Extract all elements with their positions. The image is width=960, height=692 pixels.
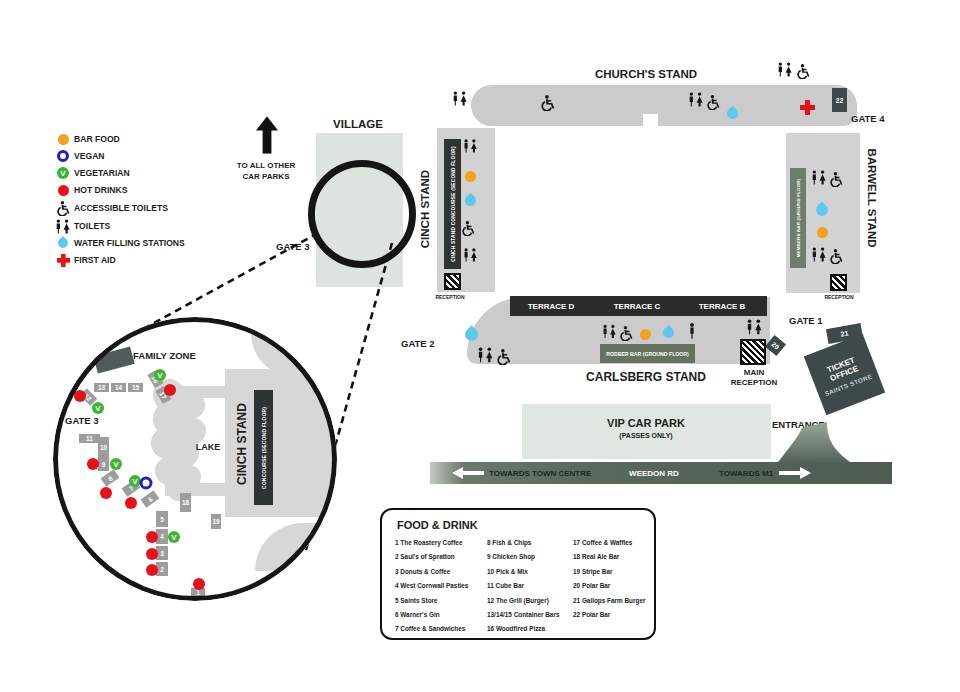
vip-label-line1: VIP CAR PARK bbox=[607, 417, 685, 429]
food-item: 17 Coffee & Waffles bbox=[573, 536, 645, 550]
first-aid-icon bbox=[800, 100, 815, 115]
toilets-icon bbox=[52, 217, 74, 235]
legend-item-bar-food: BAR FOOD bbox=[52, 131, 120, 147]
map-marker bbox=[146, 564, 158, 576]
terrace-b-label: TERRACE B bbox=[699, 302, 746, 311]
car-parks-note-line2: CAR PARKS bbox=[243, 172, 290, 181]
toilets-icon bbox=[451, 91, 469, 106]
accessible-toilets-icon bbox=[796, 64, 811, 79]
vip-label-line2: (PASSES ONLY) bbox=[619, 432, 672, 439]
food-column-3: 17 Coffee & Waffles18 Real Ale Bar19 Str… bbox=[573, 536, 645, 622]
toilets-icon bbox=[601, 324, 618, 339]
reception-label: RECEPTION bbox=[824, 294, 853, 300]
food-stall-box: 8 bbox=[101, 469, 120, 486]
legend-item-accessible-toilets: ACCESSIBLE TOILETS bbox=[52, 200, 168, 216]
legend-item-water: WATER FILLING STATIONS bbox=[52, 235, 185, 251]
gate4-badge: 22 bbox=[832, 88, 847, 112]
barwell-stand-title: BARWELL STAND bbox=[866, 148, 878, 247]
food-stall-box: 15 bbox=[128, 383, 143, 392]
rodber-bar-label: RODBER BAR (GROUND FLOOR) bbox=[606, 351, 689, 357]
village-title: VILLAGE bbox=[333, 118, 383, 130]
reception-icon bbox=[444, 273, 461, 290]
legend-label: ACCESSIBLE TOILETS bbox=[74, 203, 168, 213]
food-item: 4 West Cornwall Pasties bbox=[395, 579, 468, 593]
food-stall-box: 14 bbox=[111, 383, 126, 392]
village-circle-outline bbox=[308, 160, 416, 268]
legend-item-first-aid: FIRST AID bbox=[52, 252, 116, 268]
legend-label: FIRST AID bbox=[74, 255, 116, 265]
entrance-label: ENTRANCE bbox=[772, 419, 825, 430]
map-marker bbox=[193, 578, 205, 590]
accessible-toilets-icon bbox=[496, 349, 512, 365]
bar-food-marker bbox=[817, 227, 828, 238]
toilets-icon bbox=[462, 248, 479, 262]
accessible-toilets-icon bbox=[461, 221, 476, 236]
toilets-icon bbox=[745, 319, 764, 335]
lake-label: LAKE bbox=[196, 442, 221, 452]
gate4-label: GATE 4 bbox=[851, 113, 885, 124]
zoom-circle: CONCOURSE (SECOND FLOOR) CINCH STAND LAK… bbox=[53, 317, 337, 601]
legend-label: BAR FOOD bbox=[74, 134, 120, 144]
food-item: 2 Saul's of Spratton bbox=[395, 550, 468, 564]
food-item: 10 Pick & Mix bbox=[487, 565, 559, 579]
food-item: 11 Cube Bar bbox=[487, 579, 559, 593]
map-marker bbox=[146, 548, 158, 560]
food-item: 12 The Grill (Burger) bbox=[487, 594, 559, 608]
toilets-icon bbox=[476, 347, 495, 363]
accessible-toilets-icon bbox=[829, 172, 844, 187]
legend-label: VEGETARIAN bbox=[74, 168, 130, 178]
churchs-stand-title: CHURCH'S STAND bbox=[595, 68, 697, 80]
food-stall-box: 10 bbox=[98, 437, 109, 458]
accessible-toilets-icon bbox=[619, 326, 634, 341]
map-marker bbox=[87, 458, 99, 470]
food-column-2: 8 Fish & Chips9 Chicken Shop10 Pick & Mi… bbox=[487, 536, 559, 637]
stand-curve-bottom bbox=[255, 523, 337, 571]
legend-label: HOT DRINKS bbox=[74, 185, 127, 195]
cinch-concourse-label: CINCH STAND CONCOURSE (SECOND FLOOR) bbox=[450, 146, 455, 262]
terrace-d-label: TERRACE D bbox=[528, 302, 575, 311]
map-marker bbox=[140, 477, 153, 490]
accessible-toilets-icon bbox=[52, 199, 74, 217]
toilets-icon bbox=[810, 170, 828, 185]
reception-label: RECEPTION bbox=[435, 294, 464, 300]
main-reception-icon bbox=[740, 339, 766, 365]
map-marker bbox=[154, 369, 166, 381]
gate1-label: GATE 1 bbox=[789, 315, 823, 326]
food-stall-box: 9 bbox=[98, 457, 109, 471]
circle-gate3-label: GATE 3 bbox=[65, 415, 99, 426]
family-zone-block bbox=[93, 346, 134, 373]
map-marker bbox=[74, 390, 86, 402]
food-item: 16 Woodfired Pizza bbox=[487, 622, 559, 636]
food-item: 9 Chicken Shop bbox=[487, 550, 559, 564]
map-marker bbox=[92, 402, 104, 414]
map-marker bbox=[125, 497, 137, 509]
ticket-office-block: TICKET OFFICE SAINTS STORE bbox=[804, 334, 885, 415]
map-marker bbox=[110, 458, 122, 470]
hot-drinks-icon bbox=[52, 181, 74, 199]
car-parks-note-line1: TO ALL OTHER bbox=[237, 161, 296, 170]
accessible-toilets-icon bbox=[540, 95, 556, 111]
cinch-stand-title: CINCH STAND bbox=[419, 170, 431, 248]
first-aid-icon bbox=[52, 251, 74, 269]
food-item: 21 Gallops Farm Burger bbox=[573, 594, 645, 608]
food-stall-box: 13 bbox=[94, 383, 109, 392]
legend-label: VEGAN bbox=[74, 151, 105, 161]
toilets-icon bbox=[687, 92, 705, 107]
person-icon bbox=[688, 323, 696, 339]
road-label-town-centre: TOWARDS TOWN CENTRE bbox=[489, 469, 591, 478]
food-drink-title: FOOD & DRINK bbox=[397, 519, 478, 531]
food-item: 22 Polar Bar bbox=[573, 608, 645, 622]
members-bar-label: MEMBERS BAR (GROUND FLOOR) bbox=[796, 179, 801, 258]
food-column-1: 1 The Roastery Coffee2 Saul's of Spratto… bbox=[395, 536, 468, 637]
cinch-concourse-bar: CINCH STAND CONCOURSE (SECOND FLOOR) bbox=[444, 139, 461, 269]
water-icon bbox=[52, 234, 74, 252]
legend-item-vegetarian: V VEGETARIAN bbox=[52, 165, 130, 181]
vegetarian-icon: V bbox=[52, 164, 74, 182]
circle-cinch-stand-title: CINCH STAND bbox=[235, 403, 249, 485]
legend-item-hot-drinks: HOT DRINKS bbox=[52, 182, 127, 198]
food-item: 8 Fish & Chips bbox=[487, 536, 559, 550]
toilets-icon bbox=[810, 247, 828, 262]
road-arrow-right-icon bbox=[779, 467, 811, 479]
stadium-map-page: BAR FOOD VEGAN V VEGETARIAN HOT DRINKS A… bbox=[0, 0, 960, 692]
map-marker bbox=[168, 531, 180, 543]
food-item: 7 Coffee & Sandwiches bbox=[395, 622, 468, 636]
toilets-icon bbox=[776, 62, 794, 77]
legend-item-vegan: VEGAN bbox=[52, 148, 105, 164]
main-reception-label-line1: MAIN bbox=[744, 368, 764, 377]
bar-food-icon bbox=[52, 130, 74, 148]
food-stall-box: 11 bbox=[79, 434, 100, 443]
carlsberg-stand-title: CARLSBERG STAND bbox=[586, 370, 706, 384]
toilets-icon bbox=[462, 139, 479, 153]
food-stall-box: 19 bbox=[211, 514, 221, 529]
accessible-toilets-icon bbox=[829, 249, 844, 264]
food-item: 5 Saints Store bbox=[395, 594, 468, 608]
members-bar: MEMBERS BAR (GROUND FLOOR) bbox=[790, 168, 806, 268]
family-zone-label: FAMILY ZONE bbox=[133, 350, 196, 361]
bar-food-marker bbox=[640, 329, 651, 340]
car-parks-arrow-icon bbox=[256, 112, 278, 158]
village-gate3-label: GATE 3 bbox=[276, 241, 310, 252]
food-item: 19 Stripe Bar bbox=[573, 565, 645, 579]
bar-food-marker bbox=[465, 171, 476, 182]
circle-concourse-label: CONCOURSE (SECOND FLOOR) bbox=[261, 406, 267, 488]
food-stall-box: 18 bbox=[180, 493, 191, 512]
food-item: 6 Warner's Gin bbox=[395, 608, 468, 622]
circle-concourse-bar: CONCOURSE (SECOND FLOOR) bbox=[254, 390, 273, 505]
legend-label: WATER FILLING STATIONS bbox=[74, 238, 185, 248]
food-stall-box: 5 bbox=[156, 511, 168, 527]
main-reception-label-line2: RECEPTION bbox=[731, 378, 778, 387]
food-item: 13/14/15 Container Bars bbox=[487, 608, 559, 622]
map-marker bbox=[164, 384, 176, 396]
vegan-icon bbox=[52, 147, 74, 165]
terrace-c-label: TERRACE C bbox=[614, 302, 661, 311]
food-item: 3 Donuts & Coffee bbox=[395, 565, 468, 579]
map-marker bbox=[100, 487, 112, 499]
food-item: 20 Polar Bar bbox=[573, 579, 645, 593]
road-arrow-left-icon bbox=[452, 467, 484, 479]
legend-item-toilets: TOILETS bbox=[52, 218, 110, 234]
road-label-m1: TOWARDS M1 bbox=[719, 469, 773, 478]
legend-label: TOILETS bbox=[74, 221, 110, 231]
accessible-toilets-icon bbox=[706, 95, 721, 110]
map-marker bbox=[146, 531, 158, 543]
food-item: 1 The Roastery Coffee bbox=[395, 536, 468, 550]
rodber-bar: RODBER BAR (GROUND FLOOR) bbox=[600, 344, 695, 363]
reception-icon bbox=[830, 274, 847, 291]
stand-notch bbox=[643, 114, 658, 126]
road-label-weedon-rd: WEEDON RD bbox=[629, 469, 679, 478]
gate2-label: GATE 2 bbox=[401, 338, 435, 349]
food-item: 18 Real Ale Bar bbox=[573, 550, 645, 564]
